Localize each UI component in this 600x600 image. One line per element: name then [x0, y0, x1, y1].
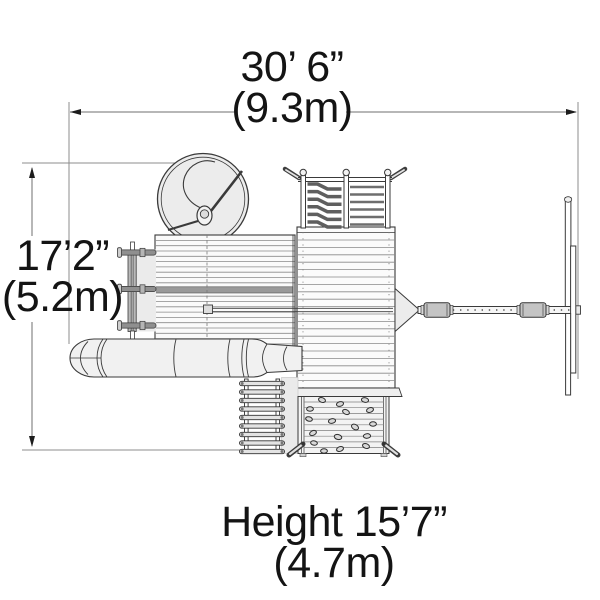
tube-slide [70, 339, 302, 377]
aframe-leg [565, 198, 571, 307]
climber-step-ladder [308, 184, 342, 227]
width-meters-text: (9.3m) [122, 88, 462, 129]
arrow-right [566, 109, 577, 115]
playset-dimension-diagram: 30’ 6” (9.3m) 17’2” (5.2m) Height 15’7” … [0, 0, 600, 600]
spiral-slide-outer-rim [158, 154, 249, 245]
aframe-leg [566, 314, 571, 396]
rock-climbing-wall [289, 397, 398, 457]
depth-dimension-label: 17’2” (5.2m) [0, 236, 135, 318]
lower-deck [155, 235, 295, 347]
arrow-down [29, 436, 35, 447]
upper-deck-bottom-skirt [292, 388, 402, 397]
access-ladder [240, 379, 285, 454]
spiral-slide-top-view [158, 154, 249, 245]
depth-feet-text: 17’2” [0, 236, 135, 277]
climber-rung-ladder [350, 187, 384, 225]
lower-deck-dark-band [155, 287, 293, 293]
beam-aframe-bracket [395, 289, 420, 332]
rock-wall-foot [381, 454, 387, 457]
arrow-up [29, 167, 35, 178]
aframe-leg-cap [565, 197, 572, 203]
rock-wall-foot [300, 454, 306, 457]
height-feet-text: Height 15’7” [134, 502, 534, 543]
ladder-rungs [240, 381, 285, 453]
aframe-leg [571, 246, 576, 373]
depth-meters-text: (5.2m) [0, 277, 135, 318]
upper-deck-surface [297, 227, 395, 388]
spiral-slide-hub-center [200, 210, 208, 218]
width-dimension-label: 30’ 6” (9.3m) [122, 47, 462, 129]
beam-anchor-bracket [204, 305, 213, 314]
tube-slide-body [70, 339, 302, 377]
swing-hanger [421, 303, 453, 317]
rear-climber [285, 169, 405, 228]
swing-aframe-legs [565, 197, 576, 395]
arrow-left [70, 109, 81, 115]
height-meters-text: (4.7m) [134, 543, 534, 584]
swing-hanger [517, 303, 549, 317]
width-feet-text: 30’ 6” [122, 47, 462, 88]
height-dimension-label: Height 15’7” (4.7m) [134, 502, 534, 584]
